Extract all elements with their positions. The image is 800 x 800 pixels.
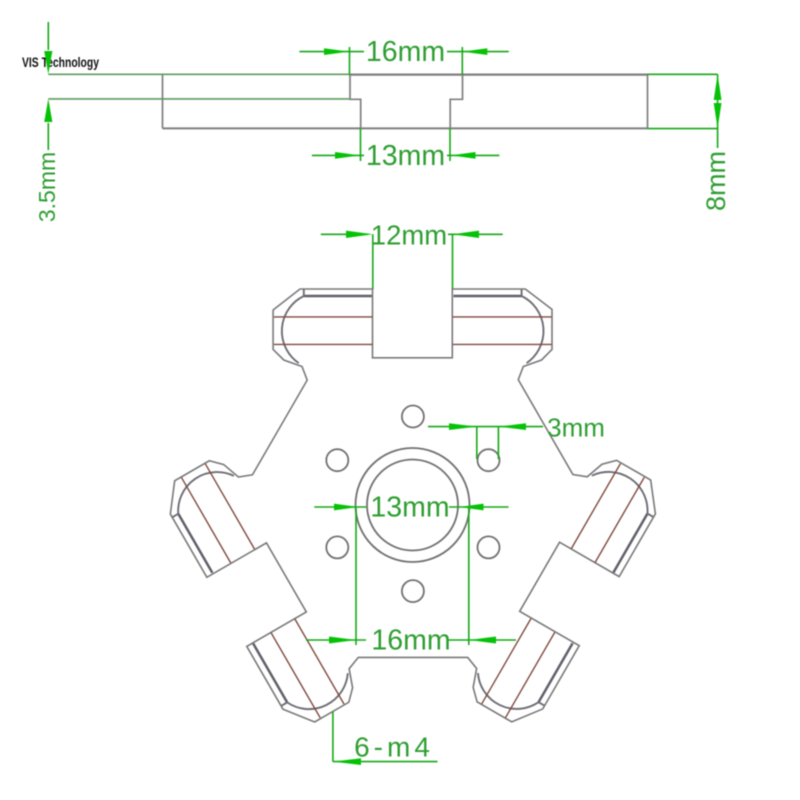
svg-text:3mm: 3mm [547,413,605,443]
svg-text:3.5mm: 3.5mm [34,152,60,222]
svg-text:13mm: 13mm [366,140,445,172]
svg-text:16mm: 16mm [366,36,445,68]
svg-text:13mm: 13mm [370,492,449,524]
svg-text:12mm: 12mm [371,220,447,251]
svg-text:6-m4: 6-m4 [354,732,434,763]
svg-text:16mm: 16mm [371,625,450,657]
svg-text:8mm: 8mm [701,151,731,211]
svg-text:VIS Technology: VIS Technology [22,54,99,70]
